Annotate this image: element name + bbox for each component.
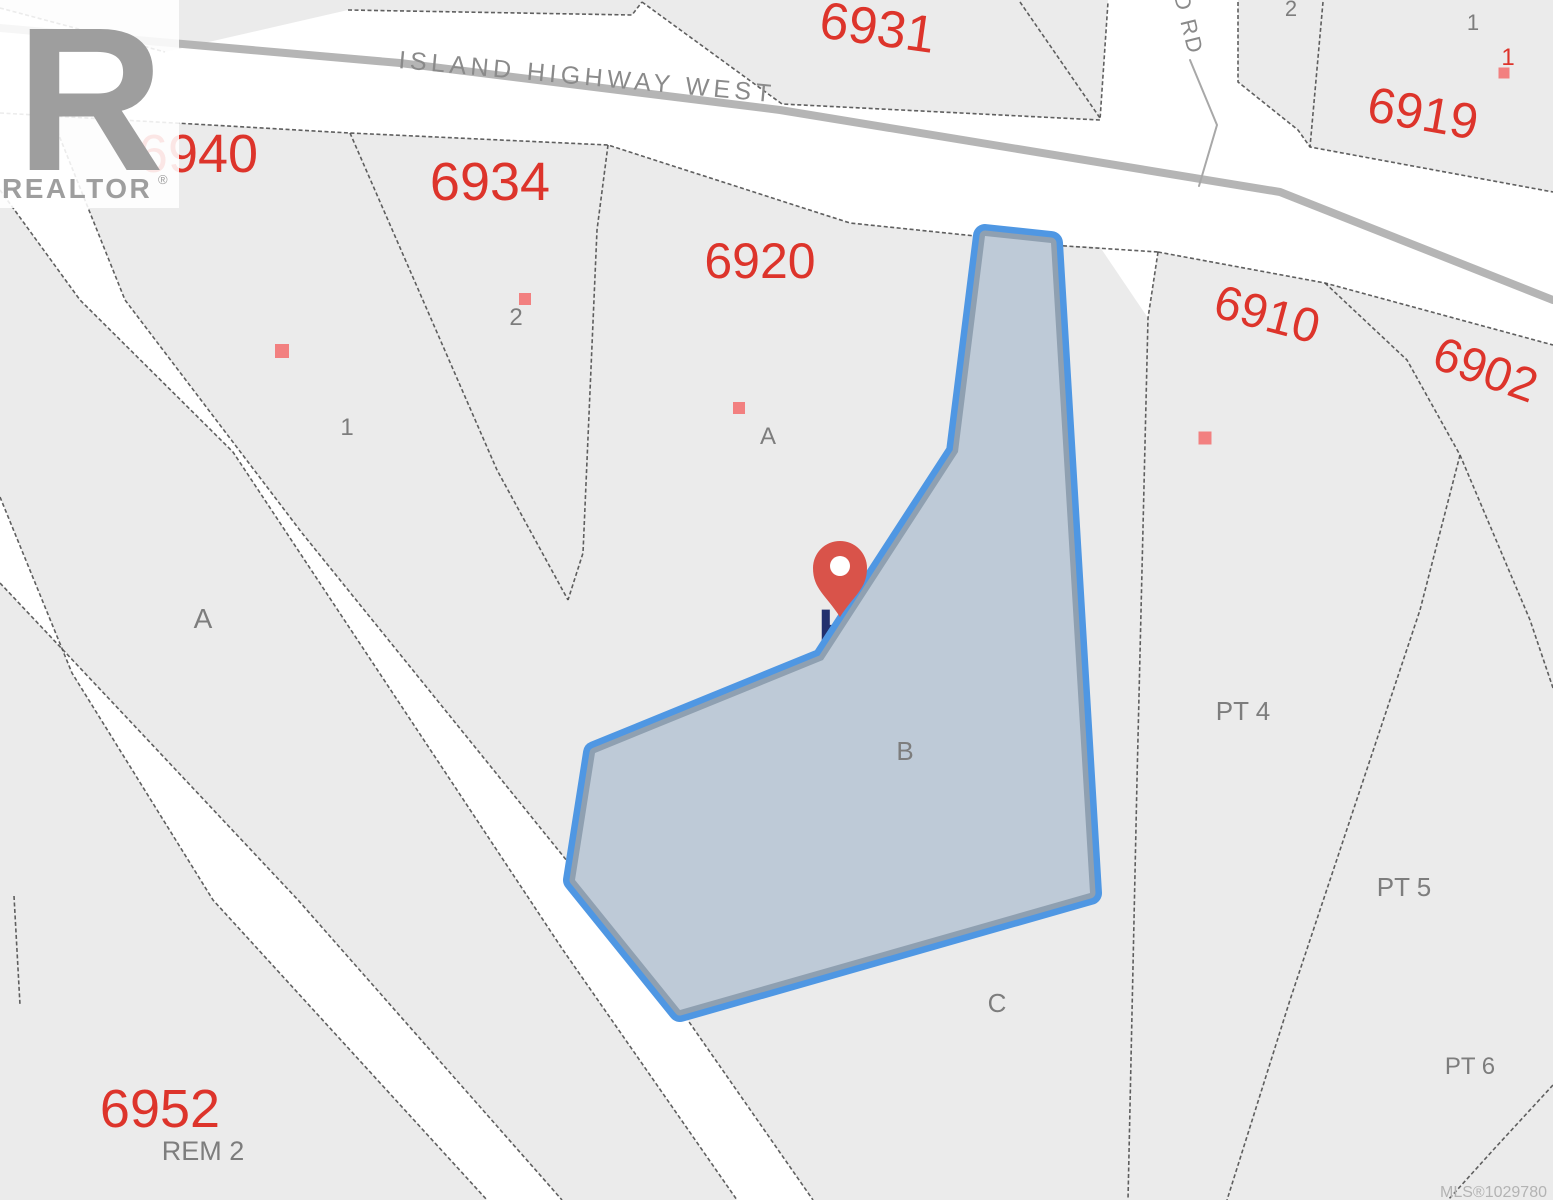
lot-label: C xyxy=(988,988,1007,1018)
lot-label: 2 xyxy=(1285,0,1297,21)
building-square xyxy=(1199,432,1212,445)
lot-label: 2 xyxy=(509,304,522,331)
lot-label: REM 2 xyxy=(162,1136,245,1166)
lot-label: B xyxy=(896,736,913,766)
address-label: 6920 xyxy=(704,233,815,289)
map-canvas[interactable]: HISLAND HIGHWAY WESTD RD6940693469206931… xyxy=(0,0,1553,1200)
lot-label: PT 4 xyxy=(1216,696,1270,726)
registered-mark: ® xyxy=(158,172,168,187)
lot-label: PT 5 xyxy=(1377,872,1431,902)
building-square xyxy=(275,344,289,358)
lot-label: PT 6 xyxy=(1445,1053,1495,1080)
lot-label: A xyxy=(194,603,213,634)
pin-hole-icon xyxy=(830,556,850,576)
address-label: 6934 xyxy=(430,152,550,212)
parcel-map-screenshot: HISLAND HIGHWAY WESTD RD6940693469206931… xyxy=(0,0,1553,1200)
realtor-watermark: RREALTOR® xyxy=(0,0,179,214)
building-square xyxy=(733,402,745,414)
building-square xyxy=(519,293,531,305)
lot-label: 1 xyxy=(340,414,353,441)
realtor-brand-text: REALTOR xyxy=(2,173,152,204)
lot-label: 1 xyxy=(1467,10,1479,35)
mls-number-label: MLS®1029780 xyxy=(1440,1184,1547,1200)
lot-label: A xyxy=(760,423,776,450)
building-square xyxy=(1499,68,1510,79)
address-label: 6952 xyxy=(100,1079,220,1139)
unit-label: 1 xyxy=(1501,44,1514,71)
